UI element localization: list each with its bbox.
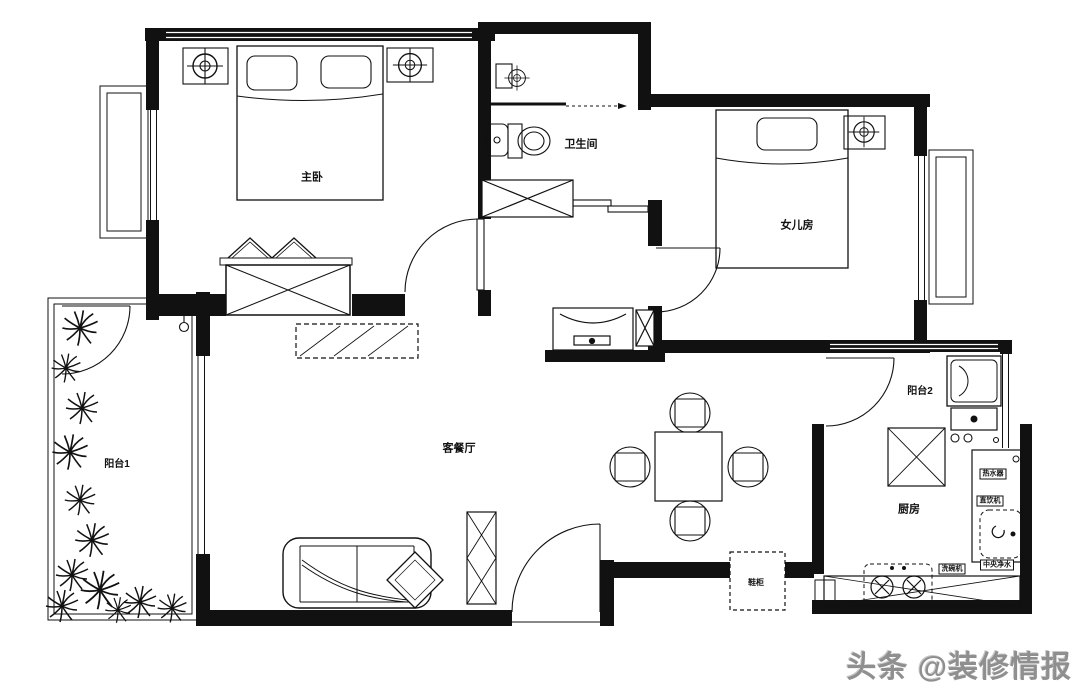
tv-cabinet [296,324,418,358]
daughter-door-arc [656,248,720,312]
pillow [757,118,817,150]
kitchen-fixtures [815,428,1022,608]
hanger-icon [228,238,316,258]
label-dishwasher: 洗碗机 [939,564,966,575]
shower-panel [496,64,512,88]
dining-table [655,432,722,501]
ceiling-light-icon [393,48,427,82]
faucet-icon [964,434,972,442]
master-door-arc [405,219,478,292]
balcony2-fixtures [947,356,1001,443]
label-water-dispenser: 直饮机 [977,496,1004,507]
room-label-balcony-1: 阳台1 [104,460,130,470]
side-cabinet [467,512,496,604]
washing-machine [947,356,1001,406]
faucet-icon [951,434,959,442]
shower-head-icon [504,65,529,90]
burner-icon [903,576,925,598]
label-water-heater: 热水器 [980,469,1007,480]
room-label-master-bedroom: 主卧 [301,173,323,184]
room-label-balcony-2: 阳台2 [907,387,933,397]
windows [48,86,1009,622]
burner-icon [871,576,893,598]
floor-plan: 主卧 卫生间 女儿房 阳台1 客餐厅 阳台2 厨房 鞋柜 热水器 直饮机 洗碗机… [0,0,1080,690]
entry-door-arc [512,524,600,612]
dining-chair [670,501,710,541]
dining-chair [610,447,650,487]
room-label-daughter-room: 女儿房 [781,221,814,232]
wall-window-lines [166,33,998,349]
label-central-water-purifier: 中央净水 [980,560,1014,571]
label-shoe-cabinet: 鞋柜 [748,579,764,587]
wardrobe-rail [220,258,352,265]
light-frame [844,116,885,149]
faucet-icon [992,526,1004,538]
bathroom-fixtures [486,64,627,158]
balcony1-door-arc [62,306,130,374]
dining-chair [670,393,710,433]
ceiling-light-icon [187,48,223,84]
gas-stove [864,564,932,606]
floor-plan-drawing [0,0,1080,690]
toilet-tank [508,124,522,158]
daughter-room-furniture [716,110,885,268]
watermark: 头条 @装修情报 [846,642,1072,686]
pillow [321,56,371,88]
ceiling-light-icon [849,117,880,148]
balcony2-door-arc [826,358,894,426]
screen-arrow-icon [618,103,627,109]
kitchen-sink [980,510,1022,558]
toilet-bowl [518,127,550,155]
dining-chair [728,447,768,487]
bathroom-sliding-door [573,200,611,206]
room-label-living-dining: 客餐厅 [443,444,476,455]
daughter-bed [716,110,848,268]
room-label-bathroom: 卫生间 [565,140,598,151]
wall-lamp-icon [180,323,189,332]
room-label-kitchen: 厨房 [898,505,920,516]
pillow [247,56,297,90]
